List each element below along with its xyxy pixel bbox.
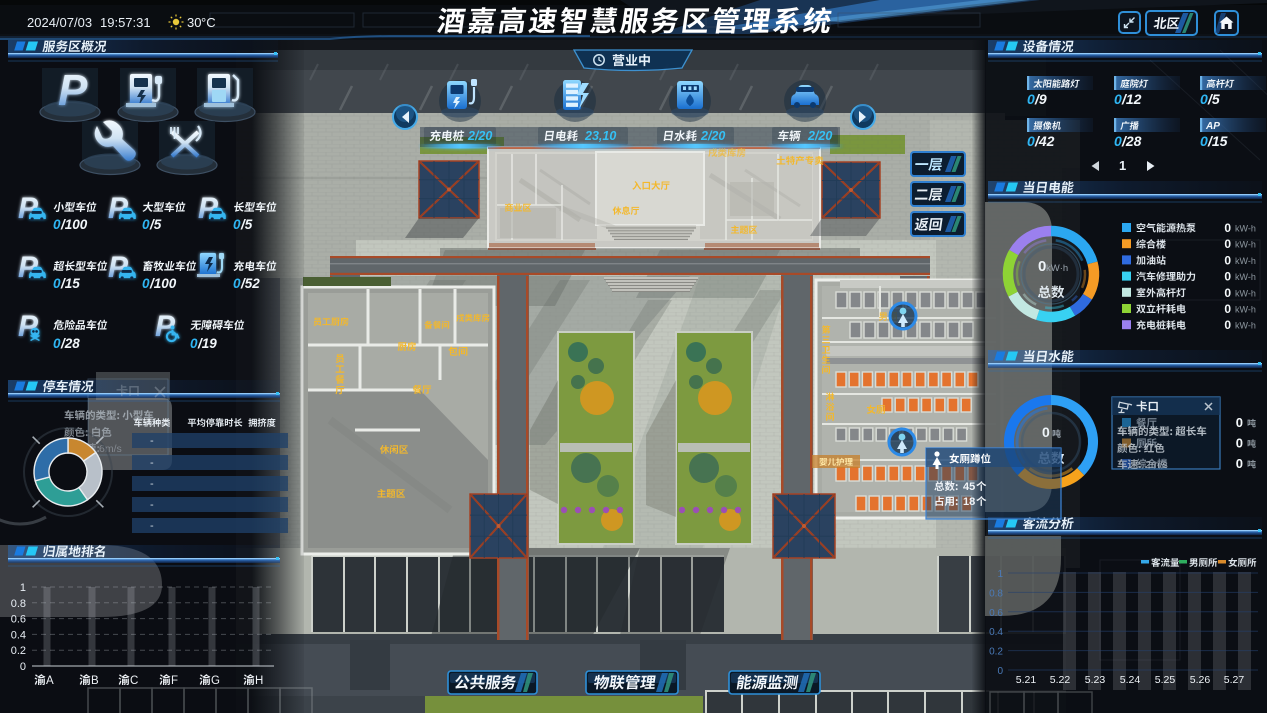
svg-text:1: 1 xyxy=(997,569,1003,580)
svg-text:F: F xyxy=(171,675,178,687)
svg-text:0: 0 xyxy=(1236,456,1243,471)
svg-text:19:57:31: 19:57:31 xyxy=(100,15,151,30)
svg-text:0: 0 xyxy=(1114,91,1122,107)
svg-text:0: 0 xyxy=(1236,415,1243,430)
svg-text:kW-h: kW-h xyxy=(1235,256,1256,266)
svg-text:0: 0 xyxy=(1224,253,1231,267)
svg-text:0: 0 xyxy=(1224,270,1231,284)
svg-text:B: B xyxy=(91,675,99,687)
svg-text:0.6: 0.6 xyxy=(989,608,1003,619)
svg-text:/12: /12 xyxy=(1121,91,1142,107)
svg-text:1: 1 xyxy=(20,582,26,594)
svg-text:2/20: 2/20 xyxy=(807,129,832,143)
svg-text:-: - xyxy=(150,520,154,532)
svg-text:G: G xyxy=(211,675,220,687)
svg-text:5.26: 5.26 xyxy=(1190,674,1211,686)
svg-text:0.6: 0.6 xyxy=(11,614,26,626)
svg-text:kW-h: kW-h xyxy=(1235,272,1256,282)
svg-text:5.22: 5.22 xyxy=(1050,674,1071,686)
svg-text:kW-h: kW-h xyxy=(1235,305,1256,315)
svg-text:AP: AP xyxy=(1205,121,1220,132)
svg-text:0: 0 xyxy=(1027,91,1035,107)
svg-text:0: 0 xyxy=(53,336,61,351)
svg-text:0: 0 xyxy=(1027,133,1035,149)
svg-text:0.4: 0.4 xyxy=(989,627,1003,638)
svg-text:/28: /28 xyxy=(1121,133,1142,149)
svg-text:0.8: 0.8 xyxy=(11,598,26,610)
svg-text:0: 0 xyxy=(233,217,241,232)
svg-text:0: 0 xyxy=(1224,221,1231,235)
svg-text:-: - xyxy=(150,499,154,511)
svg-text:1: 1 xyxy=(1119,158,1126,173)
svg-text:0.2: 0.2 xyxy=(11,645,26,657)
svg-text:5.27: 5.27 xyxy=(1224,674,1245,686)
svg-text:2/20: 2/20 xyxy=(700,129,725,143)
svg-text:kW·h: kW·h xyxy=(1046,263,1068,274)
svg-text:5.25: 5.25 xyxy=(1155,674,1176,686)
svg-text:2m/s: 2m/s xyxy=(1145,459,1168,471)
svg-text:/52: /52 xyxy=(240,276,260,291)
svg-text:/28: /28 xyxy=(60,336,80,351)
svg-text:30: 30 xyxy=(187,15,201,30)
svg-text:0: 0 xyxy=(1224,286,1231,300)
svg-text:/42: /42 xyxy=(1034,133,1055,149)
svg-text:0: 0 xyxy=(53,276,61,291)
svg-text:kW-h: kW-h xyxy=(1235,288,1256,298)
svg-text:/100: /100 xyxy=(60,217,88,232)
svg-text:0: 0 xyxy=(20,661,26,673)
svg-text:/9: /9 xyxy=(1034,91,1047,107)
svg-text:5.23: 5.23 xyxy=(1085,674,1106,686)
svg-text:0: 0 xyxy=(53,217,61,232)
svg-text:0: 0 xyxy=(142,276,150,291)
svg-text:0.2: 0.2 xyxy=(989,647,1003,658)
svg-text:-: - xyxy=(150,435,154,447)
svg-text:0: 0 xyxy=(1200,91,1208,107)
svg-text:45: 45 xyxy=(963,481,975,493)
svg-text:/19: /19 xyxy=(197,336,217,351)
svg-text:0: 0 xyxy=(1224,318,1231,332)
svg-text:0: 0 xyxy=(142,217,150,232)
svg-text:kW-h: kW-h xyxy=(1235,321,1256,331)
svg-text:0.4: 0.4 xyxy=(11,629,26,641)
svg-text:0: 0 xyxy=(1224,237,1231,251)
svg-text:P: P xyxy=(58,66,88,115)
svg-text:/5: /5 xyxy=(1207,91,1220,107)
svg-text:23,10: 23,10 xyxy=(584,129,616,143)
svg-text:H: H xyxy=(255,675,263,687)
svg-text:-: - xyxy=(150,478,154,490)
svg-text:/5: /5 xyxy=(149,217,162,232)
svg-text:0: 0 xyxy=(1224,302,1231,316)
svg-text:2/20: 2/20 xyxy=(467,129,492,143)
svg-text:C: C xyxy=(130,675,138,687)
svg-text:/15: /15 xyxy=(1207,133,1228,149)
svg-text:18: 18 xyxy=(963,496,975,508)
svg-text:5.24: 5.24 xyxy=(1120,674,1141,686)
svg-text:2024/07/03: 2024/07/03 xyxy=(27,15,92,30)
svg-text:0: 0 xyxy=(1042,424,1050,440)
svg-text:0: 0 xyxy=(190,336,198,351)
svg-text:/100: /100 xyxy=(149,276,177,291)
svg-text:/15: /15 xyxy=(60,276,80,291)
svg-text:0: 0 xyxy=(233,276,241,291)
svg-text:0: 0 xyxy=(997,666,1003,677)
svg-text:0: 0 xyxy=(1200,133,1208,149)
svg-text:°C: °C xyxy=(201,15,216,30)
svg-text:0: 0 xyxy=(1236,436,1243,451)
svg-text:kW-h: kW-h xyxy=(1235,240,1256,250)
svg-text:-: - xyxy=(150,457,154,469)
svg-text:kW-h: kW-h xyxy=(1235,224,1256,234)
svg-text:/5: /5 xyxy=(240,217,253,232)
svg-text:5.21: 5.21 xyxy=(1016,674,1037,686)
svg-text:0.8: 0.8 xyxy=(989,588,1003,599)
svg-text:0: 0 xyxy=(1114,133,1122,149)
svg-text:A: A xyxy=(46,675,54,687)
